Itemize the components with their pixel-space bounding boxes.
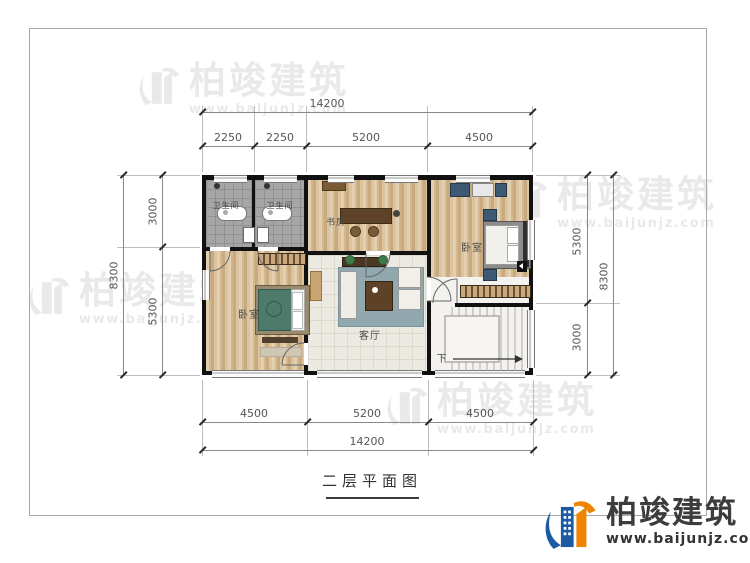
dim-left-outer: 8300 <box>108 246 121 306</box>
dimension-line <box>613 175 614 376</box>
dim-right-segment-0: 5300 <box>571 212 584 272</box>
brand-name: 柏竣建筑 <box>606 496 750 530</box>
brand-logo: 柏竣建筑 www.baijunjz.com <box>538 496 750 558</box>
extension-line <box>427 106 428 172</box>
extension-line <box>202 380 203 456</box>
plan-title-underline <box>326 497 419 499</box>
dim-bottom-segment-2: 4500 <box>450 407 510 420</box>
room-label-bathroom-2: 卫生间 <box>262 200 298 211</box>
extension-line <box>428 380 429 456</box>
dimension-line <box>202 422 534 423</box>
dim-bottom-total: 14200 <box>337 435 397 448</box>
dim-top-total: 14200 <box>287 97 367 110</box>
dimension-line <box>162 175 163 376</box>
doors-stairs-overlay <box>202 175 533 375</box>
room-label-study: 书房 <box>320 215 352 228</box>
ac-unit-icon <box>517 261 527 272</box>
floor-plan: 卫生间 卫生间 书房 卧室 卧室 客厅 下 <box>202 175 533 375</box>
dim-right-outer: 8300 <box>598 247 611 307</box>
extension-line <box>533 380 534 456</box>
room-label-bathroom-1: 卫生间 <box>208 200 244 211</box>
dimension-line <box>202 450 534 451</box>
dim-top-segment-1: 2250 <box>250 131 310 144</box>
room-label-bedroom-left: 卧室 <box>232 306 266 321</box>
extension-line <box>536 175 620 176</box>
extension-line <box>532 106 533 172</box>
dim-left-segment-1: 5300 <box>147 282 160 342</box>
stairs-down-label: 下 <box>435 350 449 365</box>
extension-line <box>307 380 308 456</box>
room-label-bedroom-right: 卧室 <box>456 239 488 254</box>
dimension-line <box>202 112 533 113</box>
dimension-line <box>123 175 124 376</box>
room-label-living: 客厅 <box>352 327 388 342</box>
plan-title: 二层平面图 <box>312 470 432 491</box>
dim-top-segment-0: 2250 <box>198 131 258 144</box>
dim-top-segment-2: 5200 <box>336 131 396 144</box>
dim-bottom-segment-1: 5200 <box>337 407 397 420</box>
dimension-line <box>587 175 588 376</box>
dim-right-segment-1: 3000 <box>571 308 584 368</box>
dim-left-segment-0: 3000 <box>147 182 160 242</box>
dim-bottom-segment-0: 4500 <box>224 407 284 420</box>
extension-line <box>536 375 620 376</box>
page-canvas: 柏竣建筑 www.baijunjz.com 柏竣建筑 www.baijunjz.… <box>0 0 750 563</box>
brand-building-icon <box>538 496 602 558</box>
dim-top-segment-3: 4500 <box>449 131 509 144</box>
brand-url: www.baijunjz.com <box>606 531 750 547</box>
stair-landing <box>445 316 499 362</box>
brand-text: 柏竣建筑 www.baijunjz.com <box>606 496 750 558</box>
